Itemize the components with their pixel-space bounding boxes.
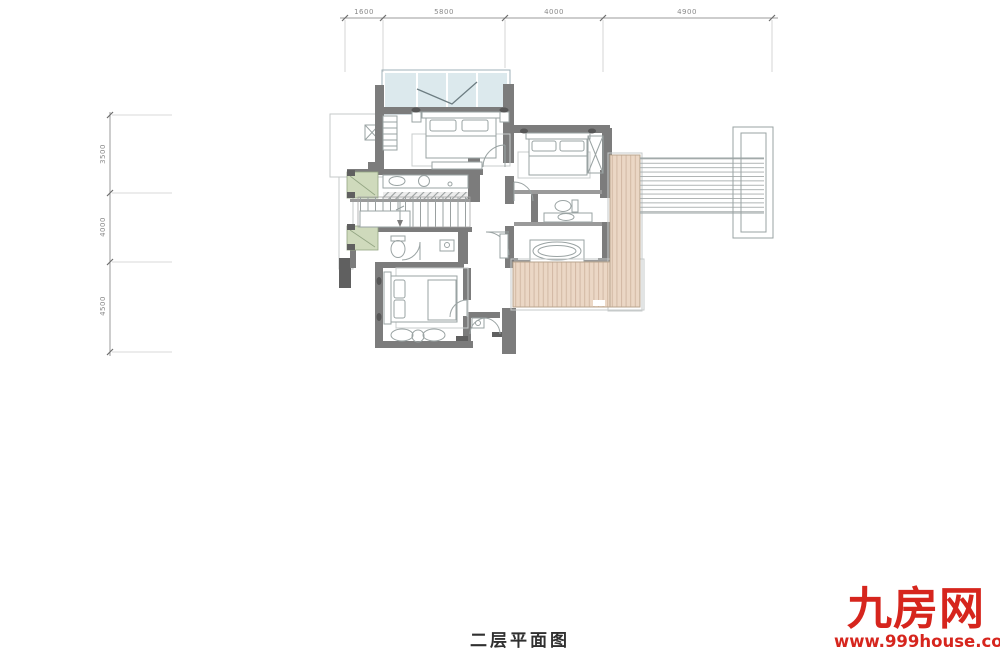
wc	[391, 236, 454, 260]
bridge	[640, 127, 773, 238]
watermark-url: www.999house.com	[834, 634, 998, 651]
deck	[511, 153, 644, 311]
dim-label-top-1: 1600	[354, 8, 374, 16]
bedroom-lower	[377, 268, 469, 342]
watermark: 九房网 www.999house.com	[834, 586, 998, 651]
staircase	[358, 197, 470, 227]
left-dimension-line	[107, 112, 172, 356]
watermark-brand: 九房网	[834, 586, 998, 631]
dim-label-top-4: 4900	[677, 8, 697, 16]
page-title: 二层平面图	[470, 626, 570, 651]
bathroom-right	[544, 200, 592, 222]
bathroom-upper	[383, 175, 468, 199]
master-bedroom	[383, 108, 510, 170]
page: 1600 5800 4000 4900 3500 4000 4500 二层平面图…	[0, 0, 1000, 667]
dim-label-left-2: 4000	[99, 217, 107, 237]
dim-label-top-3: 4000	[544, 8, 564, 16]
floor-plan	[0, 0, 1000, 667]
dim-label-top-2: 5800	[434, 8, 454, 16]
top-dimension-line	[340, 15, 778, 72]
dim-label-left-3: 4500	[99, 296, 107, 316]
dim-label-left-1: 3500	[99, 144, 107, 164]
